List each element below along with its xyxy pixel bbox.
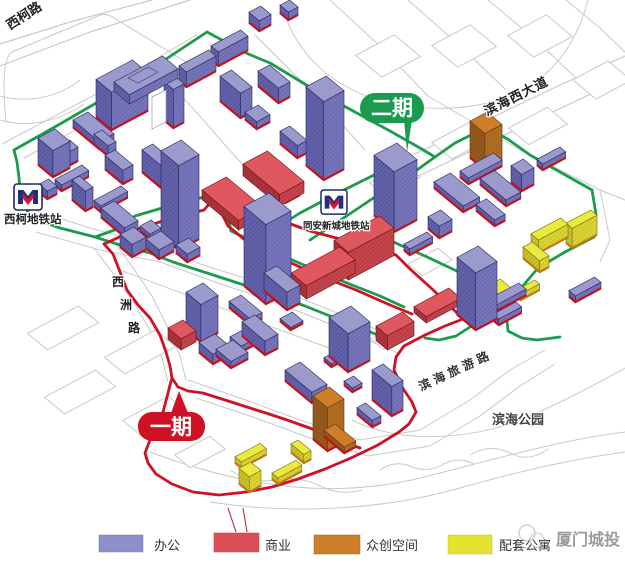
svg-text:厦门城投: 厦门城投 [556,530,620,549]
svg-text:一期: 一期 [150,416,192,439]
svg-text:众创空间: 众创空间 [366,538,418,553]
svg-text:洲: 洲 [120,298,132,312]
svg-text:二期: 二期 [371,97,413,120]
svg-text:滨海公园: 滨海公园 [492,412,544,427]
svg-text:西: 西 [112,275,124,289]
svg-text:西柯地铁站: 西柯地铁站 [4,212,62,226]
svg-text:路: 路 [128,320,141,335]
svg-text:办公: 办公 [154,538,180,553]
svg-text:商业: 商业 [265,538,291,553]
svg-text:同安新城地铁站: 同安新城地铁站 [303,220,370,232]
